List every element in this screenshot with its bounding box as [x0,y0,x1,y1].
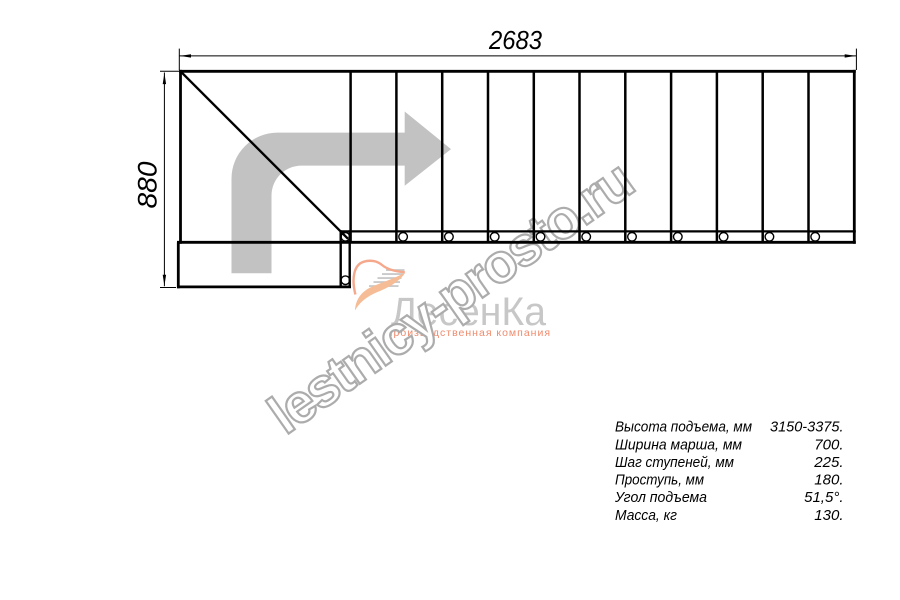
svg-text:lestnicy-prosto.ru: lestnicy-prosto.ru [257,149,644,446]
svg-text:Угол подъема: Угол подъема [614,489,707,506]
svg-text:Проступь, мм: Проступь, мм [615,472,704,489]
svg-text:Масса, кг: Масса, кг [615,507,678,524]
svg-text:Шаг ступеней, мм: Шаг ступеней, мм [615,454,734,471]
svg-text:3150-3375.: 3150-3375. [770,419,844,436]
svg-text:700.: 700. [814,436,843,453]
svg-text:51,5°.: 51,5°. [804,489,843,506]
svg-text:Высота подъема, мм: Высота подъема, мм [615,419,752,436]
svg-text:2683: 2683 [488,25,542,55]
svg-text:225.: 225. [813,454,843,471]
svg-text:880: 880 [133,161,163,208]
svg-text:180.: 180. [814,472,843,489]
svg-text:130.: 130. [814,507,843,524]
svg-text:Ширина марша, мм: Ширина марша, мм [615,436,742,453]
